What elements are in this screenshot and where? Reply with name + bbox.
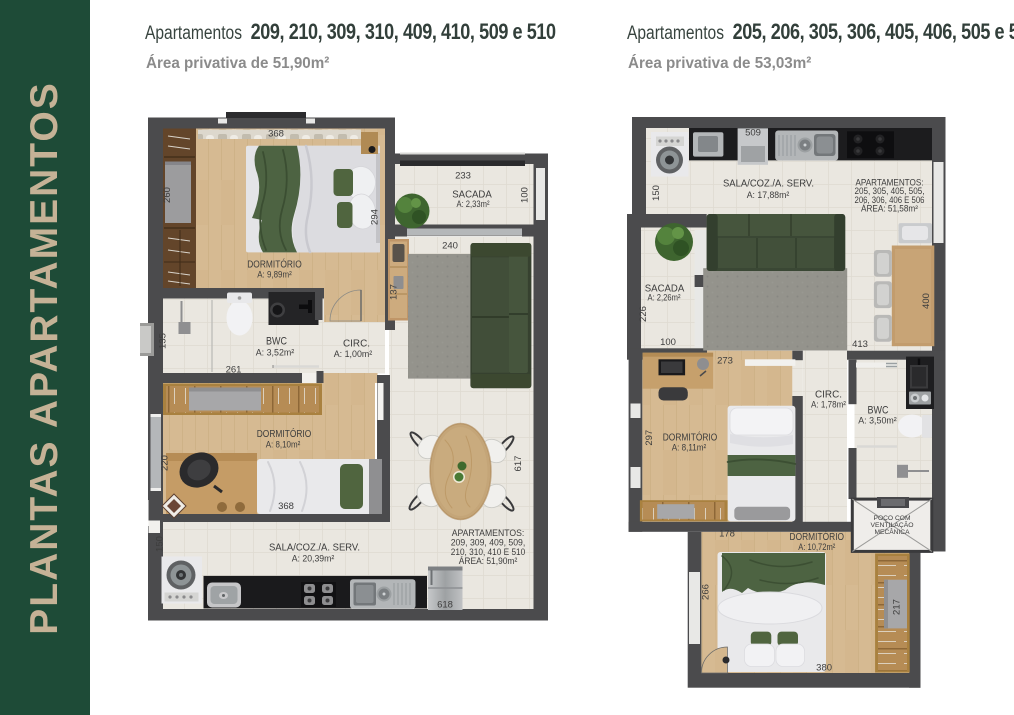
svg-text:A: 8,10m²: A: 8,10m² [266,440,301,451]
svg-text:A: 17,88m²: A: 17,88m² [747,190,790,201]
svg-text:A: 3,50m²: A: 3,50m² [858,416,897,427]
svg-text:226: 226 [638,306,649,322]
svg-text:A: 2,33m²: A: 2,33m² [457,199,490,210]
svg-text:260: 260 [162,187,173,203]
svg-text:368: 368 [268,129,284,140]
svg-text:368: 368 [278,501,294,512]
svg-text:A: 20,39m²: A: 20,39m² [292,554,335,565]
svg-text:273: 273 [717,356,733,367]
svg-text:509: 509 [745,128,761,139]
svg-text:380: 380 [816,663,832,674]
svg-text:A: 10,72m²: A: 10,72m² [798,542,835,553]
svg-text:POÇO COM: POÇO COM [874,515,911,522]
svg-text:ÁREA: 51,58m²: ÁREA: 51,58m² [861,204,918,214]
svg-text:ÁREA: 51,90m²: ÁREA: 51,90m² [459,556,518,566]
svg-text:413: 413 [852,339,868,350]
svg-text:SALA/COZ./A. SERV.: SALA/COZ./A. SERV. [269,542,360,554]
svg-text:A: 1,00m²: A: 1,00m² [334,349,373,360]
svg-text:CIRC.: CIRC. [343,338,370,350]
svg-text:A: 8,11m²: A: 8,11m² [672,443,707,454]
svg-text:217: 217 [892,599,903,615]
svg-text:150: 150 [155,536,166,552]
svg-text:100: 100 [520,187,531,203]
svg-text:100: 100 [660,337,676,348]
svg-text:MECÂNICA: MECÂNICA [875,527,910,536]
svg-text:A: 3,52m²: A: 3,52m² [256,348,295,359]
svg-text:137: 137 [389,284,400,300]
svg-text:VENTILAÇÃO: VENTILAÇÃO [871,520,914,529]
svg-text:A: 9,89m²: A: 9,89m² [257,270,292,281]
svg-text:617: 617 [513,456,524,472]
svg-text:A: 2,26m²: A: 2,26m² [648,293,681,304]
svg-text:220: 220 [160,455,171,471]
svg-text:294: 294 [370,209,381,225]
svg-text:A: 1,78m²: A: 1,78m² [811,400,846,411]
svg-text:135: 135 [158,333,169,349]
svg-text:SALA/COZ./A. SERV.: SALA/COZ./A. SERV. [723,178,814,190]
svg-text:240: 240 [442,241,458,252]
svg-text:DORMITÓRIO: DORMITÓRIO [257,427,312,440]
svg-text:266: 266 [701,584,712,600]
svg-text:233: 233 [455,171,471,182]
svg-text:178: 178 [719,529,735,540]
svg-text:618: 618 [437,600,453,611]
svg-text:BWC: BWC [266,336,287,348]
svg-text:400: 400 [921,293,932,309]
svg-text:261: 261 [226,365,242,376]
svg-text:150: 150 [651,185,662,201]
svg-text:297: 297 [644,430,655,446]
